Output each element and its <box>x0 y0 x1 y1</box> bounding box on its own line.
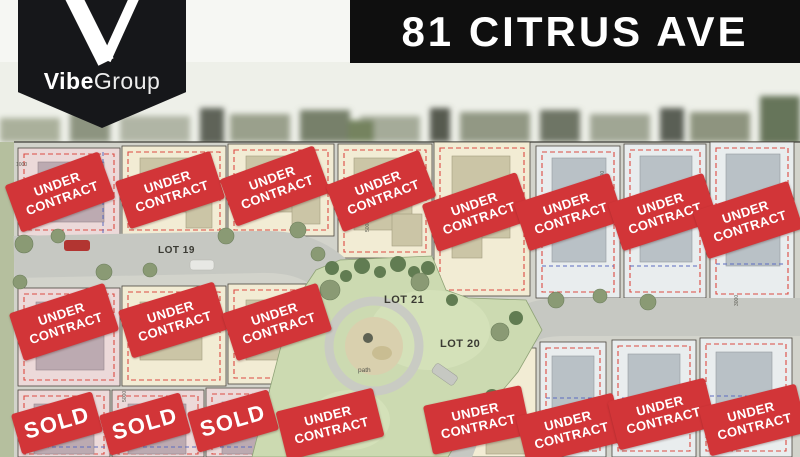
address-banner: 81 CITRUS AVE <box>350 0 800 63</box>
status-badge-under-contract: UNDER CONTRACT <box>115 151 226 229</box>
status-badge-sold: SOLD <box>187 389 279 453</box>
status-badge-under-contract: UNDER CONTRACT <box>325 150 436 233</box>
status-badge-sold: SOLD <box>99 392 191 456</box>
status-badge-under-contract: UNDER CONTRACT <box>222 283 333 361</box>
flyer: LOT 19 LOT 21 LOT 20 path 1000 5000 5000… <box>0 0 800 457</box>
status-badge-under-contract: UNDER CONTRACT <box>219 145 330 226</box>
status-badge-under-contract: UNDER CONTRACT <box>698 384 800 457</box>
status-badge-under-contract: UNDER CONTRACT <box>514 173 625 251</box>
status-badge-under-contract: UNDER CONTRACT <box>423 385 531 455</box>
status-badge-under-contract: UNDER CONTRACT <box>275 388 384 457</box>
status-badge-under-contract: UNDER CONTRACT <box>4 151 115 232</box>
status-badge-under-contract: UNDER CONTRACT <box>9 283 120 361</box>
status-badge-under-contract: UNDER CONTRACT <box>118 281 228 358</box>
brand-name-light: Group <box>94 68 160 94</box>
vibegroup-v-icon <box>52 0 152 68</box>
status-badge-sold: SOLD <box>11 391 103 455</box>
brand-name: VibeGroup <box>18 68 186 95</box>
brand-name-bold: Vibe <box>44 68 94 94</box>
page-title: 81 CITRUS AVE <box>401 8 748 56</box>
